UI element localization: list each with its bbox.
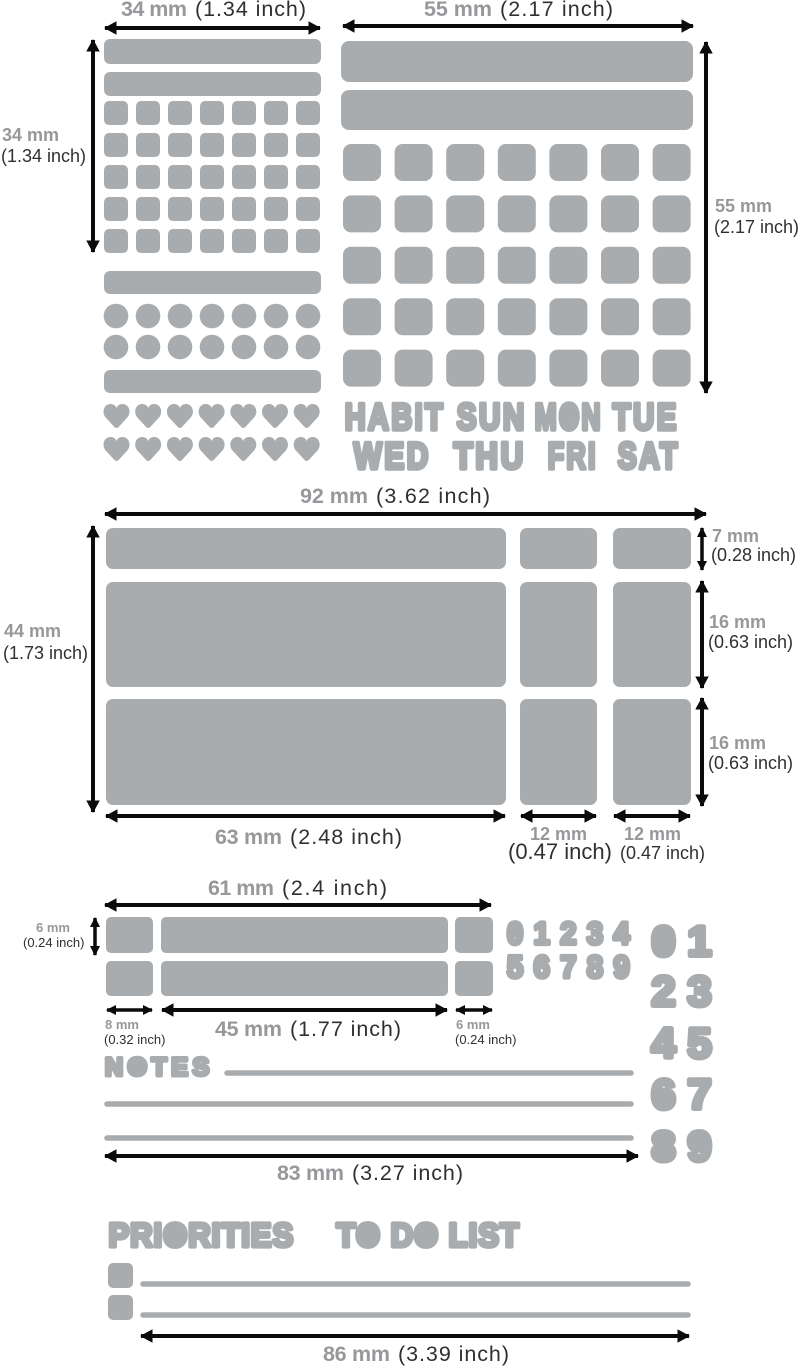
svg-text:(2.48 inch): (2.48 inch) (290, 825, 402, 849)
svg-text:12 mm: 12 mm (624, 824, 681, 844)
svg-text:WED: WED (354, 436, 431, 477)
svg-text:(0.47 inch): (0.47 inch) (620, 843, 705, 863)
svg-text:(1.73 inch): (1.73 inch) (3, 643, 88, 663)
svg-text:SAT: SAT (618, 436, 680, 477)
svg-text:2 3: 2 3 (652, 968, 712, 1015)
svg-text:THU: THU (454, 436, 526, 477)
svg-text:(2.17 inch): (2.17 inch) (714, 217, 799, 237)
svg-text:44 mm: 44 mm (4, 621, 61, 641)
svg-text:92 mm: 92 mm (300, 484, 368, 508)
svg-text:61 mm: 61 mm (208, 876, 274, 900)
svg-text:(3.27 inch): (3.27 inch) (352, 1161, 463, 1185)
svg-text:(1.34 inch): (1.34 inch) (195, 0, 306, 21)
svg-text:HABIT: HABIT (345, 397, 446, 438)
svg-text:(0.32 inch): (0.32 inch) (104, 1032, 165, 1047)
svg-text:(0.24 inch): (0.24 inch) (23, 935, 84, 950)
svg-text:86 mm: 86 mm (323, 1342, 390, 1366)
svg-text:(1.34 inch): (1.34 inch) (1, 146, 86, 166)
svg-text:TUE: TUE (613, 397, 679, 438)
svg-text:16 mm: 16 mm (709, 733, 766, 753)
svg-text:55 mm: 55 mm (424, 0, 492, 21)
svg-text:NOTES: NOTES (105, 1054, 214, 1082)
svg-text:(3.62 inch): (3.62 inch) (376, 484, 490, 508)
svg-text:(1.77 inch): (1.77 inch) (290, 1017, 401, 1041)
svg-text:63 mm: 63 mm (215, 825, 282, 849)
svg-text:55 mm: 55 mm (715, 196, 772, 216)
svg-text:(3.39 inch): (3.39 inch) (398, 1342, 509, 1366)
svg-text:34 mm: 34 mm (2, 125, 59, 145)
svg-text:(2.4 inch): (2.4 inch) (282, 876, 387, 900)
svg-text:34 mm: 34 mm (121, 0, 187, 21)
svg-text:6 mm: 6 mm (36, 920, 70, 935)
svg-text:(0.47 inch): (0.47 inch) (508, 839, 612, 864)
svg-text:56789: 56789 (507, 951, 640, 985)
svg-text:83 mm: 83 mm (277, 1161, 344, 1185)
svg-text:SUN: SUN (457, 397, 527, 438)
svg-text:6 mm: 6 mm (456, 1017, 490, 1032)
svg-text:4 5: 4 5 (652, 1020, 712, 1067)
svg-text:7 mm: 7 mm (712, 526, 759, 546)
svg-text:(0.24 inch): (0.24 inch) (455, 1032, 516, 1047)
svg-text:45 mm: 45 mm (215, 1017, 282, 1041)
svg-text:01234: 01234 (507, 917, 640, 951)
svg-text:(2.17 inch): (2.17 inch) (500, 0, 613, 21)
svg-text:(0.63 inch): (0.63 inch) (708, 753, 793, 773)
svg-text:(0.63 inch): (0.63 inch) (708, 632, 793, 652)
svg-text:16 mm: 16 mm (709, 612, 766, 632)
svg-text:8 mm: 8 mm (105, 1017, 139, 1032)
svg-text:PRIORITIES: PRIORITIES (109, 1217, 295, 1254)
svg-text:(0.28 inch): (0.28 inch) (711, 545, 796, 565)
svg-text:FRI: FRI (548, 436, 598, 477)
